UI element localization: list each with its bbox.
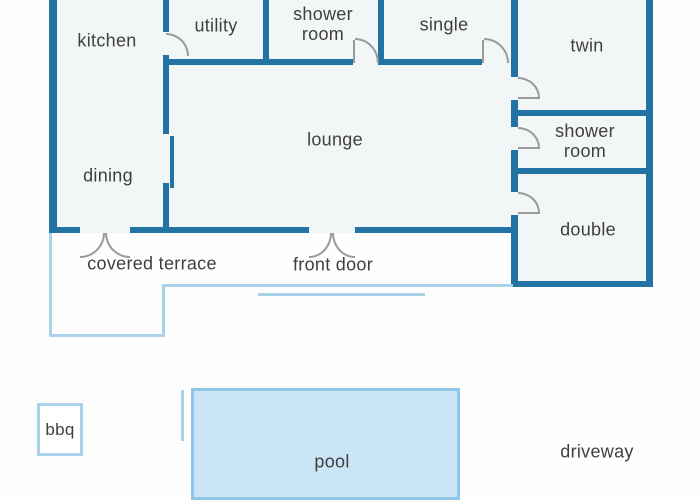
room-label-shower-room-top: shower room <box>280 4 366 44</box>
shower-right-door-leaf <box>518 147 540 149</box>
terrace-outline-left <box>49 233 52 337</box>
path-line <box>258 293 425 296</box>
wall-double-bottom <box>511 281 653 287</box>
room-label-dining: dining <box>83 166 133 187</box>
room-label-twin: twin <box>570 36 603 57</box>
label-bbq: bbq <box>45 420 74 440</box>
wall-right-outer <box>646 0 653 287</box>
wall-kitchen-divider-seg2 <box>163 55 169 134</box>
wall-utility-shower-divider <box>263 0 269 65</box>
room-label-utility: utility <box>194 16 237 37</box>
dining-opening-leaf <box>170 136 174 188</box>
label-front-door: front door <box>293 255 373 276</box>
wall-shower-single-divider <box>378 0 384 65</box>
terrace-outline-bottom <box>49 334 165 337</box>
twin-door-leaf <box>518 97 540 99</box>
wall-lounge-top-seg1 <box>163 59 353 65</box>
wall-lounge-top-seg2 <box>384 59 482 65</box>
room-label-shower-room-right: shower room <box>542 121 628 161</box>
wall-twin-shower-divider <box>511 110 653 116</box>
room-label-single: single <box>420 15 469 36</box>
wall-shower-double-divider <box>511 168 653 174</box>
floor-plan: kitchen utility shower room single twin … <box>0 0 700 500</box>
wall-kitchen-divider-seg3 <box>163 183 169 233</box>
room-label-kitchen: kitchen <box>77 31 136 52</box>
label-covered-terrace: covered terrace <box>87 254 217 275</box>
pool-side-line <box>181 390 184 441</box>
wall-corridor-seg1 <box>511 0 518 77</box>
terrace-outline-front <box>162 284 513 287</box>
wall-kitchen-divider-seg1 <box>163 0 169 32</box>
wall-left-outer <box>49 0 57 233</box>
pool <box>191 388 460 500</box>
label-pool: pool <box>314 452 349 473</box>
wall-bottom-seg2 <box>130 227 309 233</box>
wall-bottom-seg3 <box>355 227 513 233</box>
wall-corridor-seg4 <box>511 215 518 287</box>
room-label-double: double <box>560 220 616 241</box>
double-door-leaf <box>518 212 540 214</box>
terrace-outline-step <box>162 284 165 337</box>
room-label-lounge: lounge <box>307 130 363 151</box>
wall-bottom-seg1 <box>49 227 80 233</box>
label-driveway: driveway <box>560 442 633 463</box>
